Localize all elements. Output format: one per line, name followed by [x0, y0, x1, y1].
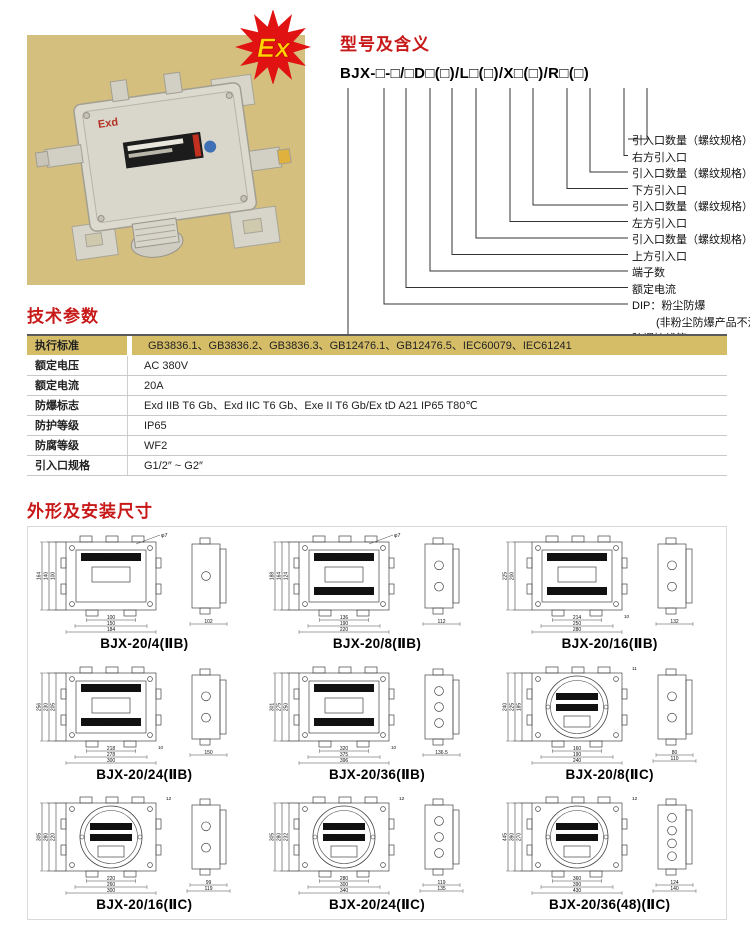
dimension-drawing: ExdⅡBT6严禁带电开盖22520021425028010132 [496, 530, 724, 638]
svg-text:10: 10 [391, 745, 397, 750]
model-label: 上方引入口 [632, 248, 687, 264]
model-label: 引入口数量（螺纹规格） [632, 132, 750, 148]
param-value: IP65 [127, 416, 727, 435]
svg-text:184: 184 [107, 627, 116, 633]
drawing-cell: ExdⅡBT6严禁带电开盖25623020521827830010150BJX-… [28, 658, 261, 789]
drawing-cell: ExdⅡCT6严禁带电开盖2402251851601902401180110BJ… [493, 658, 726, 789]
svg-text:φ7: φ7 [161, 533, 168, 539]
svg-text:396: 396 [340, 757, 349, 763]
svg-text:305: 305 [269, 833, 275, 842]
param-value: Exd IIB T6 Gb、Exd IIC T6 Gb、Exe II T6 Gb… [127, 396, 727, 415]
dimension-drawing: ExdⅡCT6严禁带电开盖2402251851601902401180110 [496, 661, 724, 769]
svg-text:220: 220 [340, 627, 349, 633]
ex-certification-badge: Ex [233, 10, 313, 84]
model-code: BJX-□-□/□D□(□)/L□(□)/X□(□)/R□(□) [340, 65, 745, 82]
svg-text:10: 10 [158, 745, 164, 750]
model-meaning-section: 型号及含义 BJX-□-□/□D□(□)/L□(□)/X□(□)/R□(□) 引… [340, 30, 745, 357]
svg-text:ExdⅡBT6: ExdⅡBT6 [335, 686, 354, 691]
param-value: G1/2″ ~ G2″ [127, 456, 727, 475]
drawing-cell: ExdⅡBT6164140100100150184φ7102BJX-20/4(Ⅱ… [28, 527, 261, 658]
svg-text:280: 280 [572, 627, 581, 633]
svg-text:φ7: φ7 [394, 533, 401, 539]
svg-text:119: 119 [205, 886, 213, 892]
svg-text:230: 230 [44, 702, 50, 711]
svg-text:136.5: 136.5 [435, 749, 448, 755]
drawing-caption: BJX-20/8(ⅡB) [333, 636, 421, 652]
param-value: 20A [127, 376, 727, 395]
drawing-caption: BJX-20/4(ⅡB) [100, 636, 188, 652]
svg-text:112: 112 [437, 619, 445, 625]
svg-text:250: 250 [283, 702, 289, 711]
param-row: 防护等级 IP65 [27, 416, 727, 436]
param-row: 额定电压 AC 380V [27, 356, 727, 376]
svg-text:12: 12 [399, 796, 405, 802]
param-row: 防爆标志 Exd IIB T6 Gb、Exd IIC T6 Gb、Exe II … [27, 396, 727, 416]
svg-text:305: 305 [37, 833, 43, 842]
model-label: 右方引入口 [632, 149, 687, 165]
svg-text:12: 12 [166, 796, 172, 802]
param-label: 额定电压 [27, 356, 127, 375]
svg-text:301: 301 [269, 702, 275, 711]
svg-text:300: 300 [107, 757, 116, 763]
drawing-caption: BJX-20/36(48)(ⅡC) [549, 897, 670, 913]
dims-section-title: 外形及安装尺寸 [27, 497, 153, 522]
svg-text:225: 225 [502, 572, 508, 581]
svg-text:严禁带电开盖: 严禁带电开盖 [563, 704, 590, 711]
svg-text:150: 150 [205, 749, 214, 755]
drawing-cell: ExdⅡBT6严禁带电开盖30127525032037539610136.5BJ… [261, 658, 494, 789]
drawing-caption: BJX-20/24(ⅡB) [96, 767, 192, 783]
ex-badge-text: Ex [257, 33, 291, 63]
model-label: 左方引入口 [632, 215, 687, 231]
drawing-cell: ExdⅡCT6严禁带电开盖3052802202202603001299119BJ… [28, 788, 261, 919]
param-label: 执行标准 [27, 336, 127, 355]
model-label: 端子数 [632, 264, 665, 280]
dimension-drawing: ExdⅡCT6严禁带电开盖30528023228030034012119135 [263, 791, 491, 899]
svg-text:225: 225 [509, 702, 515, 711]
model-label: (非粉尘防爆产品不注) [656, 314, 750, 330]
svg-text:ExdⅡCT6: ExdⅡCT6 [335, 825, 354, 830]
param-label: 防护等级 [27, 416, 127, 435]
drawing-caption: BJX-20/16(ⅡC) [96, 897, 192, 913]
drawing-caption: BJX-20/36(ⅡB) [329, 767, 425, 783]
svg-text:232: 232 [283, 833, 289, 842]
svg-text:390: 390 [509, 833, 515, 842]
model-label: 额定电流 [632, 281, 676, 297]
svg-text:185: 185 [516, 702, 522, 711]
svg-text:200: 200 [509, 572, 515, 581]
svg-text:12: 12 [632, 796, 638, 802]
param-row: 防腐等级 WF2 [27, 436, 727, 456]
svg-text:ExdⅡBT6: ExdⅡBT6 [102, 686, 121, 691]
svg-text:240: 240 [502, 702, 508, 711]
model-section-title: 型号及含义 [340, 30, 745, 55]
svg-text:300: 300 [107, 888, 116, 894]
drawing-cell: ExdⅡBT6严禁带电开盖188164124136190220φ7112BJX-… [261, 527, 494, 658]
svg-text:135: 135 [437, 886, 446, 892]
svg-text:严禁带电开盖: 严禁带电开盖 [98, 719, 126, 726]
model-label: 下方引入口 [632, 182, 687, 198]
svg-text:256: 256 [37, 702, 43, 711]
svg-text:140: 140 [44, 572, 50, 581]
svg-text:严禁带电开盖: 严禁带电开盖 [330, 719, 358, 726]
svg-text:164: 164 [37, 572, 43, 581]
drawing-cell: ExdⅡCT6严禁带电开盖30528023228030034012119135B… [261, 788, 494, 919]
svg-text:132: 132 [670, 619, 679, 625]
dimension-drawing: ExdⅡCT6严禁带电开盖44539027036039043012124140 [496, 791, 724, 899]
svg-text:ExdⅡCT6: ExdⅡCT6 [102, 825, 121, 830]
svg-text:严禁带电开盖: 严禁带电开盖 [563, 835, 590, 842]
svg-text:110: 110 [670, 755, 678, 761]
svg-text:ExdⅡBT6: ExdⅡBT6 [567, 555, 586, 560]
drawing-cell: ExdⅡCT6严禁带电开盖44539027036039043012124140B… [493, 788, 726, 919]
param-row: 额定电流 20A [27, 376, 727, 396]
svg-text:ExdⅡCT6: ExdⅡCT6 [568, 694, 587, 699]
svg-text:102: 102 [205, 619, 214, 625]
svg-text:严禁带电开盖: 严禁带电开盖 [330, 588, 358, 595]
dimension-drawings-panel: ExdⅡBT6164140100100150184φ7102BJX-20/4(Ⅱ… [27, 526, 727, 920]
svg-text:280: 280 [276, 833, 282, 842]
svg-text:275: 275 [276, 702, 282, 711]
svg-text:240: 240 [572, 757, 581, 763]
svg-text:205: 205 [51, 702, 57, 711]
param-row: 引入口规格 G1/2″ ~ G2″ [27, 456, 727, 476]
model-label: 引入口数量（螺纹规格） [632, 231, 750, 247]
model-label: 引入口数量（螺纹规格） [632, 198, 750, 214]
drawing-caption: BJX-20/8(ⅡC) [566, 767, 654, 783]
svg-text:严禁带电开盖: 严禁带电开盖 [563, 588, 591, 595]
param-label: 额定电流 [27, 376, 127, 395]
dimension-drawing: ExdⅡBT6严禁带电开盖30127525032037539610136.5 [263, 661, 491, 769]
svg-text:430: 430 [572, 888, 581, 894]
params-section-title: 技术参数 [27, 302, 99, 327]
svg-text:10: 10 [624, 614, 630, 619]
dimension-drawing: ExdⅡBT6严禁带电开盖188164124136190220φ7112 [263, 530, 491, 638]
svg-text:11: 11 [632, 666, 637, 672]
drawing-caption: BJX-20/24(ⅡC) [329, 897, 425, 913]
svg-text:188: 188 [269, 572, 275, 581]
svg-text:164: 164 [276, 572, 282, 581]
svg-text:220: 220 [51, 833, 57, 842]
param-label: 防腐等级 [27, 436, 127, 455]
model-label: DIP：粉尘防爆 [632, 297, 705, 313]
svg-text:124: 124 [283, 572, 289, 581]
svg-text:140: 140 [670, 886, 679, 892]
dimension-drawing: ExdⅡBT6164140100100150184φ7102 [30, 530, 258, 638]
param-label: 引入口规格 [27, 456, 127, 475]
svg-text:340: 340 [340, 888, 349, 894]
svg-text:270: 270 [516, 833, 522, 842]
svg-text:严禁带电开盖: 严禁带电开盖 [331, 835, 358, 842]
svg-text:100: 100 [51, 572, 57, 581]
param-value: AC 380V [127, 356, 727, 375]
param-value: WF2 [127, 436, 727, 455]
drawing-cell: ExdⅡBT6严禁带电开盖22520021425028010132BJX-20/… [493, 527, 726, 658]
svg-text:280: 280 [44, 833, 50, 842]
param-label: 防爆标志 [27, 396, 127, 415]
svg-text:ExdⅡBT6: ExdⅡBT6 [335, 555, 354, 560]
drawing-caption: BJX-20/16(ⅡB) [562, 636, 658, 652]
param-row: 执行标准 GB3836.1、GB3836.2、GB3836.3、GB12476.… [27, 336, 727, 356]
param-value: GB3836.1、GB3836.2、GB3836.3、GB12476.1、GB1… [127, 336, 727, 355]
model-breakdown-diagram: 引入口数量（螺纹规格）右方引入口引入口数量（螺纹规格）下方引入口引入口数量（螺纹… [340, 82, 745, 357]
model-label: 引入口数量（螺纹规格） [632, 165, 750, 181]
svg-text:445: 445 [502, 833, 508, 842]
svg-text:严禁带电开盖: 严禁带电开盖 [98, 835, 125, 842]
dimension-drawing: ExdⅡBT6严禁带电开盖25623020521827830010150 [30, 661, 258, 769]
dimension-drawing: ExdⅡCT6严禁带电开盖3052802202202603001299119 [30, 791, 258, 899]
svg-text:ExdⅡBT6: ExdⅡBT6 [102, 555, 121, 560]
svg-text:ExdⅡCT6: ExdⅡCT6 [568, 825, 587, 830]
technical-parameters-table: 执行标准 GB3836.1、GB3836.2、GB3836.3、GB12476.… [27, 334, 727, 476]
